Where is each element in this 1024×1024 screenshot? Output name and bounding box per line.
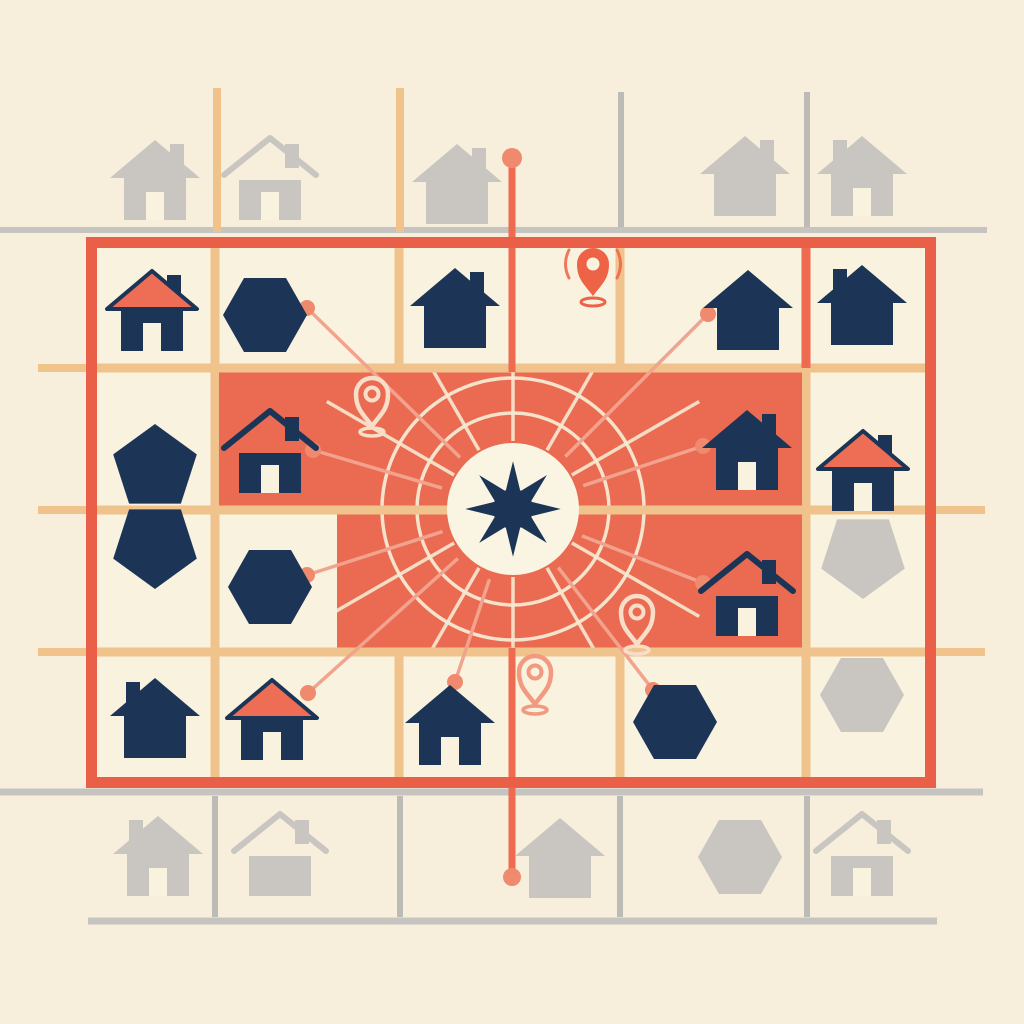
house-door <box>853 868 871 896</box>
pin-hole <box>587 258 600 271</box>
house-door <box>143 323 161 351</box>
map-illustration <box>0 0 1024 1024</box>
house-body <box>424 304 486 348</box>
map-scene-svg <box>0 0 1024 1024</box>
house-door <box>738 462 756 490</box>
house-door <box>853 188 871 216</box>
house-body <box>717 306 779 350</box>
house-body <box>426 180 488 224</box>
house-door <box>146 192 164 220</box>
center-poi-marker[interactable] <box>447 443 579 575</box>
house-body <box>714 172 776 216</box>
axis-end-dot <box>502 148 522 168</box>
house-door <box>263 732 281 760</box>
house-body <box>831 301 893 345</box>
house-door <box>854 483 872 511</box>
connector-dot <box>700 306 716 322</box>
house-door <box>738 608 756 636</box>
house-body <box>249 856 311 896</box>
house-door <box>261 465 279 493</box>
house-door <box>441 737 459 765</box>
house-body <box>529 854 591 898</box>
hub-star-icon <box>461 457 565 561</box>
house-body <box>124 714 186 758</box>
house-door <box>149 868 167 896</box>
house-door <box>261 192 279 220</box>
axis-end-dot <box>503 868 521 886</box>
connector-dot <box>300 685 316 701</box>
